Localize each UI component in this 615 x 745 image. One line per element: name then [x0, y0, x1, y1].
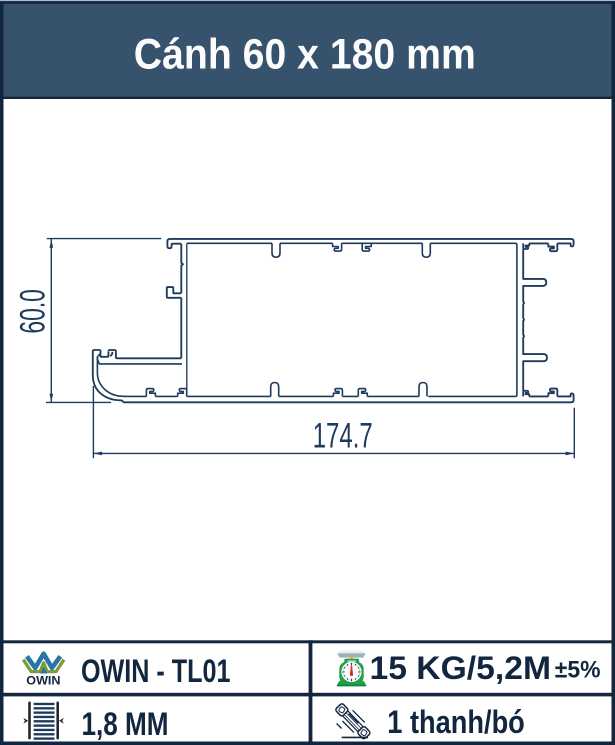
svg-text:174.7: 174.7: [313, 416, 373, 456]
svg-text:OWIN - TL01: OWIN - TL01: [81, 653, 231, 689]
svg-text:Cánh 60 x 180 mm: Cánh 60 x 180 mm: [134, 32, 476, 79]
svg-text:±5%: ±5%: [555, 656, 601, 683]
svg-text:60.0: 60.0: [13, 289, 52, 334]
svg-text:OWIN: OWIN: [26, 676, 60, 688]
svg-text:1 thanh/bó: 1 thanh/bó: [387, 704, 525, 740]
svg-text:15 KG/5,2M: 15 KG/5,2M: [370, 650, 552, 686]
svg-text:1,8 MM: 1,8 MM: [82, 706, 169, 742]
